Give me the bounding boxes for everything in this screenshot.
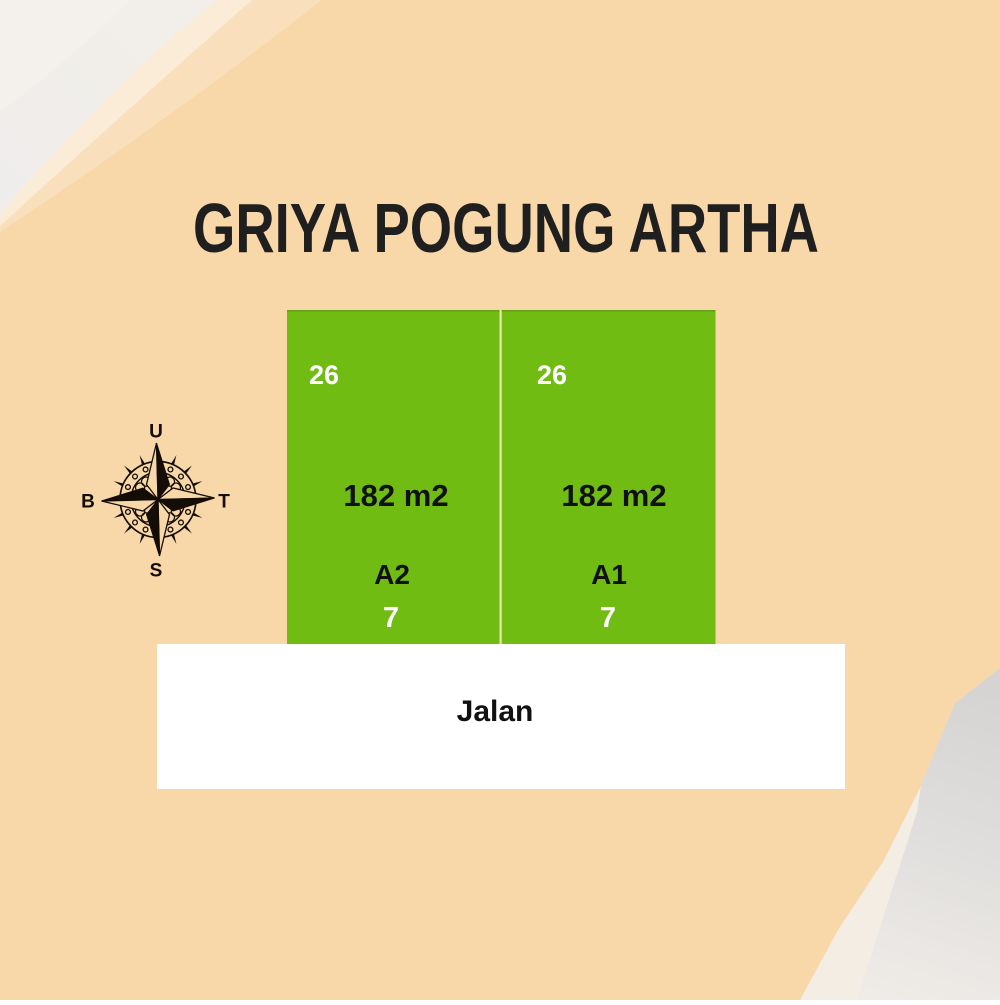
svg-text:S: S: [150, 561, 163, 582]
svg-text:T: T: [218, 492, 230, 513]
svg-text:26: 26: [309, 360, 339, 390]
svg-text:B: B: [81, 492, 95, 513]
svg-text:182 m2: 182 m2: [343, 478, 448, 513]
svg-text:U: U: [149, 422, 163, 443]
svg-text:26: 26: [537, 360, 567, 390]
svg-text:A1: A1: [591, 559, 627, 590]
svg-text:182 m2: 182 m2: [561, 478, 666, 513]
svg-text:A2: A2: [374, 559, 410, 590]
svg-text:GRIYA POGUNG ARTHA: GRIYA POGUNG ARTHA: [193, 189, 819, 267]
svg-text:7: 7: [383, 602, 399, 634]
svg-text:Jalan: Jalan: [457, 695, 534, 728]
svg-text:7: 7: [600, 602, 616, 634]
